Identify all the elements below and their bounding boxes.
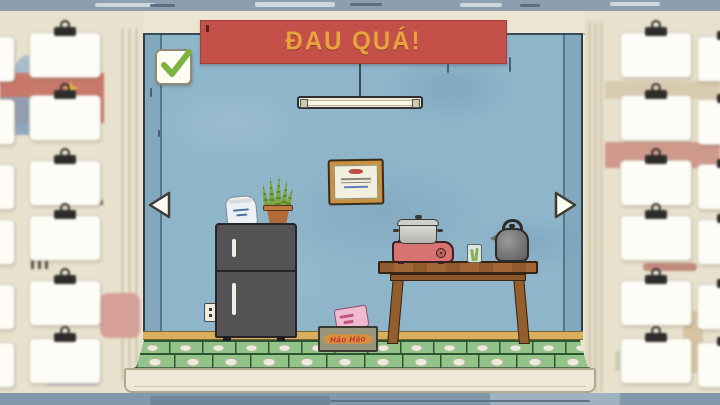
binder-clip-icon bbox=[645, 27, 667, 36]
ledge-line bbox=[134, 386, 586, 387]
snake-plant-leaves bbox=[261, 175, 295, 209]
right-arrow-button[interactable] bbox=[551, 189, 579, 221]
left-side-panel: ★ bbox=[0, 11, 143, 393]
noodle-box[interactable]: Hảo Hảo bbox=[318, 326, 378, 352]
binder-clip-icon bbox=[54, 333, 76, 342]
stove-foot bbox=[438, 261, 444, 264]
stove-dial bbox=[436, 248, 446, 258]
note-card[interactable] bbox=[620, 32, 692, 78]
fridge-foot bbox=[277, 336, 285, 341]
lamp-endcap bbox=[300, 99, 308, 108]
plant-pot-rim bbox=[263, 205, 293, 211]
note-card[interactable] bbox=[0, 36, 15, 82]
newspaper-figure bbox=[45, 260, 48, 269]
wall-crack bbox=[158, 130, 160, 137]
display-case-ledge bbox=[124, 368, 596, 393]
task-checkbox[interactable] bbox=[155, 49, 192, 85]
pot-handle bbox=[437, 229, 443, 232]
note-card[interactable] bbox=[0, 164, 15, 210]
right-corner-line bbox=[563, 33, 565, 332]
case-edge-line bbox=[601, 23, 602, 391]
lamp-wire bbox=[359, 62, 361, 97]
note-card[interactable] bbox=[620, 338, 692, 384]
left-arrow-button[interactable] bbox=[146, 189, 174, 221]
stove-foot bbox=[398, 261, 404, 264]
packet-print bbox=[343, 320, 353, 325]
binder-clip-icon bbox=[54, 27, 76, 36]
kettle[interactable] bbox=[495, 228, 529, 262]
binder-clip-icon bbox=[645, 275, 667, 284]
cooking-pot[interactable] bbox=[399, 225, 437, 244]
wall-crack bbox=[509, 57, 511, 72]
outer-floor bbox=[0, 393, 720, 405]
case-edge-line bbox=[122, 29, 123, 381]
ceiling-shadow bbox=[520, 4, 540, 7]
right-arrow-icon bbox=[551, 189, 579, 221]
note-card[interactable] bbox=[0, 284, 15, 330]
note-card[interactable] bbox=[697, 284, 720, 330]
note-card[interactable] bbox=[29, 280, 101, 326]
ceiling-highlight bbox=[610, 2, 660, 6]
banner-text: ĐAU QUÁ! bbox=[286, 27, 422, 57]
note-card[interactable] bbox=[29, 338, 101, 384]
ceiling-highlight bbox=[460, 3, 502, 7]
pot-lid bbox=[397, 219, 439, 226]
packet-print bbox=[340, 314, 354, 319]
certificate-line bbox=[341, 178, 370, 180]
binder-clip-icon bbox=[54, 275, 76, 284]
right-panel-content bbox=[585, 11, 720, 393]
tile-row bbox=[136, 353, 588, 368]
right-side-panel bbox=[585, 11, 720, 393]
wall-crack bbox=[447, 64, 449, 73]
pot-handle bbox=[393, 229, 399, 232]
note-card[interactable] bbox=[697, 99, 720, 145]
note-card[interactable] bbox=[620, 280, 692, 326]
banner[interactable]: ĐAU QUÁ! bbox=[200, 20, 507, 64]
ceiling-beam bbox=[0, 0, 720, 11]
ceiling-shadow bbox=[350, 3, 382, 6]
fluorescent-lamp[interactable] bbox=[297, 96, 423, 109]
floor-shade bbox=[150, 396, 330, 405]
certificate-signature-line bbox=[344, 186, 368, 188]
framed-certificate[interactable] bbox=[328, 159, 385, 206]
wall-crack bbox=[150, 88, 152, 97]
floor-line bbox=[330, 400, 590, 402]
noodle-box-label: Hảo Hảo bbox=[330, 334, 366, 344]
outlet-slot bbox=[209, 308, 212, 311]
freezer-handle bbox=[232, 239, 236, 257]
fridge-foot bbox=[223, 336, 231, 341]
note-card[interactable] bbox=[29, 95, 101, 141]
certificate-line bbox=[341, 181, 370, 183]
note-card[interactable] bbox=[29, 160, 101, 206]
fridge-handle bbox=[232, 283, 236, 315]
note-card[interactable] bbox=[697, 36, 720, 82]
case-edge-line bbox=[595, 23, 596, 391]
case-edge-line bbox=[129, 29, 130, 381]
bag-fold bbox=[228, 198, 253, 204]
game-scene: ★ bbox=[0, 0, 720, 405]
lamp-endcap bbox=[412, 99, 420, 108]
note-card[interactable] bbox=[620, 160, 692, 206]
note-card[interactable] bbox=[29, 215, 101, 261]
note-card[interactable] bbox=[620, 95, 692, 141]
outlet-slot bbox=[209, 314, 212, 317]
note-card[interactable] bbox=[697, 342, 720, 388]
right-wall-face bbox=[565, 33, 581, 332]
ceiling-highlight bbox=[95, 3, 155, 7]
binder-clip-icon bbox=[645, 155, 667, 164]
binder-clip-icon bbox=[54, 90, 76, 99]
fridge-divider bbox=[217, 270, 295, 272]
note-card[interactable] bbox=[0, 342, 15, 388]
note-card[interactable] bbox=[0, 99, 15, 145]
left-arrow-icon bbox=[146, 189, 174, 221]
certificate-paper bbox=[334, 165, 379, 200]
floor-highlight bbox=[490, 393, 620, 405]
ceiling-highlight bbox=[255, 2, 335, 7]
note-card[interactable] bbox=[697, 164, 720, 210]
binder-clip-icon bbox=[645, 90, 667, 99]
lamp-tube bbox=[306, 100, 414, 106]
case-edge-line bbox=[589, 23, 590, 391]
glass-cup[interactable] bbox=[467, 244, 482, 263]
bag-print bbox=[233, 208, 249, 211]
note-card[interactable] bbox=[697, 219, 720, 265]
binder-clip-icon bbox=[54, 155, 76, 164]
cup-contents bbox=[474, 248, 478, 261]
binder-clip-icon bbox=[54, 210, 76, 219]
note-card[interactable] bbox=[29, 32, 101, 78]
portable-gas-stove[interactable] bbox=[392, 241, 454, 263]
bag-print bbox=[236, 214, 247, 217]
kettle-knob bbox=[509, 224, 515, 228]
case-edge-line bbox=[136, 29, 137, 381]
refrigerator[interactable] bbox=[215, 223, 297, 338]
binder-clip-icon bbox=[645, 210, 667, 219]
note-card[interactable] bbox=[620, 215, 692, 261]
checkmark-icon bbox=[157, 47, 195, 81]
left-panel-content: ★ bbox=[0, 11, 143, 393]
note-card[interactable] bbox=[0, 219, 15, 265]
banner-tack bbox=[206, 25, 209, 32]
ceiling-shadow bbox=[150, 4, 175, 7]
certificate-emblem bbox=[349, 169, 363, 174]
table-apron bbox=[390, 274, 526, 281]
pot-lid-knob bbox=[415, 215, 422, 219]
poster-pink-patch bbox=[100, 293, 140, 338]
binder-clip-icon bbox=[645, 333, 667, 342]
